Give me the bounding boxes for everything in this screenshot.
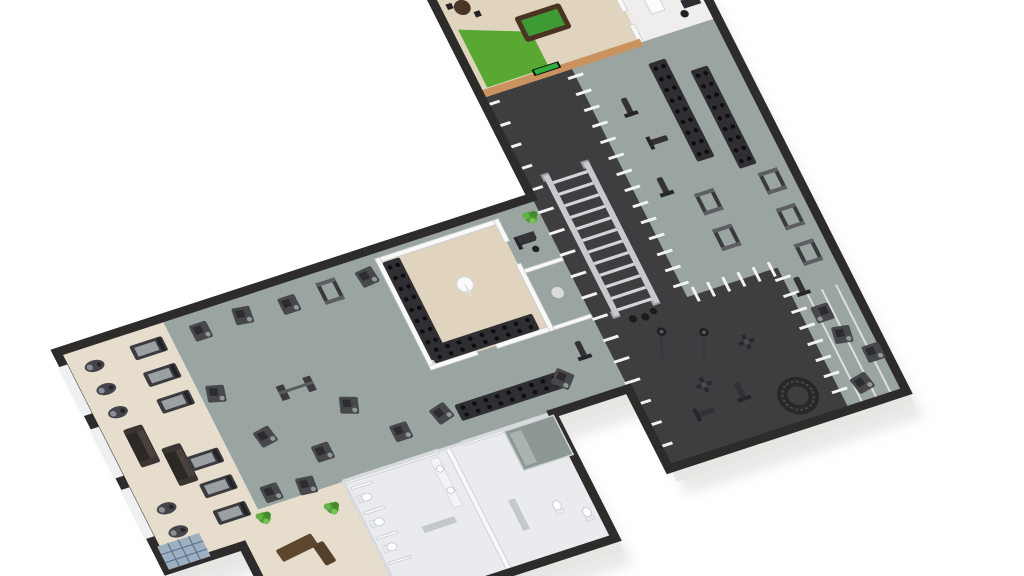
cardio-couch [161,443,199,487]
locker-bench [422,516,457,533]
sauna-room [504,415,573,470]
dumbbell-rack [690,65,757,168]
bar-island [634,0,665,14]
office-chair [679,9,690,19]
floor-lounge-wood [428,0,641,95]
dumbbell-rack [648,58,715,161]
wing-office-chair [531,245,541,253]
tractor-tire [777,378,819,414]
lounge-zone [438,0,588,60]
floor-wing-tile [161,197,628,509]
wall-tv [532,61,562,76]
building [0,0,929,576]
studio-lamp [454,275,479,300]
brick-wall [478,39,643,99]
sauna-bench [510,430,538,466]
machine-zone [171,213,615,510]
floorplan-render [0,0,1024,576]
floor-studio-wood [379,222,550,366]
floorplan-stage [0,0,1024,576]
turf-conditioning-gear [644,292,819,443]
cardio-zone [66,336,264,570]
floor-hall-tile [570,18,906,440]
floor-base [0,0,929,576]
floor-reception-wood [229,482,406,576]
reception-plant [322,500,342,517]
reception-zone [254,489,366,576]
building-plinth [0,0,937,576]
sink-counter [430,457,463,508]
putting-green [458,9,549,87]
locker-perimeter-wall [344,414,616,576]
studio-zone [382,228,540,364]
wing-office-desk [516,231,537,244]
floor-lane-lines [807,284,892,403]
storage-cubbies [157,533,211,570]
turf-hash-marks [484,43,848,451]
floor-cardio-wood [57,318,272,570]
studio-dumbbell-rack [382,257,449,360]
exterior-walls [0,0,929,576]
dumbbell-rack [454,371,567,421]
bar-table [445,0,482,24]
utility-tank [549,285,566,299]
locker-rooms-zone [348,415,604,576]
office-plant [521,209,541,226]
functional-rig [540,159,666,329]
floor-sprint-turf [480,36,850,469]
free-weights-zone [602,39,899,423]
pool-table [514,3,572,43]
reception-desk [275,533,318,562]
kitchen-bar-zone [593,0,711,33]
building-shadow [0,0,947,576]
floor-kitchen [590,0,718,42]
wing-office [507,209,577,301]
entry-plant [254,510,274,527]
window-wall [58,364,154,539]
cable-crossover [276,376,317,401]
studio-dumbbell-rack [427,313,540,363]
floor-locker-tile [344,414,616,576]
office-desk [680,0,701,9]
reception-desk-return [312,541,336,566]
cardio-couch [123,424,161,468]
locker-bench [508,498,530,530]
interior-walls [143,0,855,576]
